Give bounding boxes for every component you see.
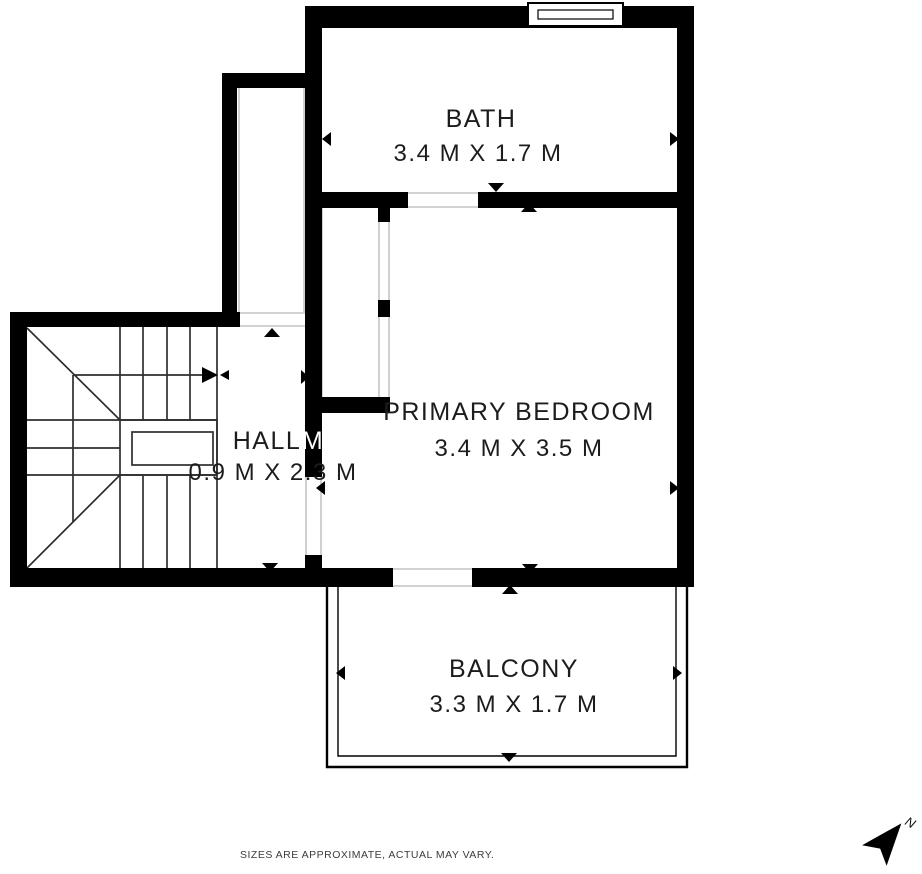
- disclaimer-text: SIZES ARE APPROXIMATE, ACTUAL MAY VARY.: [240, 849, 494, 861]
- wall-nook-stub-mid: [378, 300, 390, 317]
- wall-hall-left: [10, 312, 27, 587]
- hall-label: HALL: [233, 427, 302, 455]
- hall-dims: 0.9 M X 2.3 M: [189, 459, 358, 486]
- wall-right-exterior: [677, 6, 694, 587]
- wall-bath-bedroom-right: [478, 192, 694, 208]
- bath-label: BATH: [446, 105, 517, 133]
- wall-entry-nook: [305, 397, 390, 413]
- balcony-label: BALCONY: [449, 655, 579, 683]
- balcony-dims: 3.3 M X 1.7 M: [430, 691, 599, 718]
- wall-bottom-right: [472, 568, 694, 587]
- wall-corridor-top: [222, 73, 308, 88]
- primary-bedroom-label: PRIMARY BEDROOM: [383, 398, 655, 426]
- wall-corridor-left: [222, 73, 237, 327]
- primary-bedroom-dims: 3.4 M X 3.5 M: [435, 435, 604, 462]
- window: [528, 3, 623, 26]
- wall-nook-stub-top: [378, 208, 390, 222]
- floor-plan: BATH 3.4 M X 1.7 M PRIMARY BEDROOM 3.4 M…: [0, 0, 922, 874]
- wall-hall-top: [10, 312, 240, 327]
- bath-dims: 3.4 M X 1.7 M: [394, 140, 563, 167]
- wall-west-stub: [305, 555, 322, 568]
- wall-bath-bedroom-left: [305, 192, 408, 208]
- wall-bottom-left: [10, 568, 393, 587]
- floor-plan-page: BATH 3.4 M X 1.7 M PRIMARY BEDROOM 3.4 M…: [0, 0, 922, 874]
- hall-label-wall-letter: M: [302, 427, 324, 455]
